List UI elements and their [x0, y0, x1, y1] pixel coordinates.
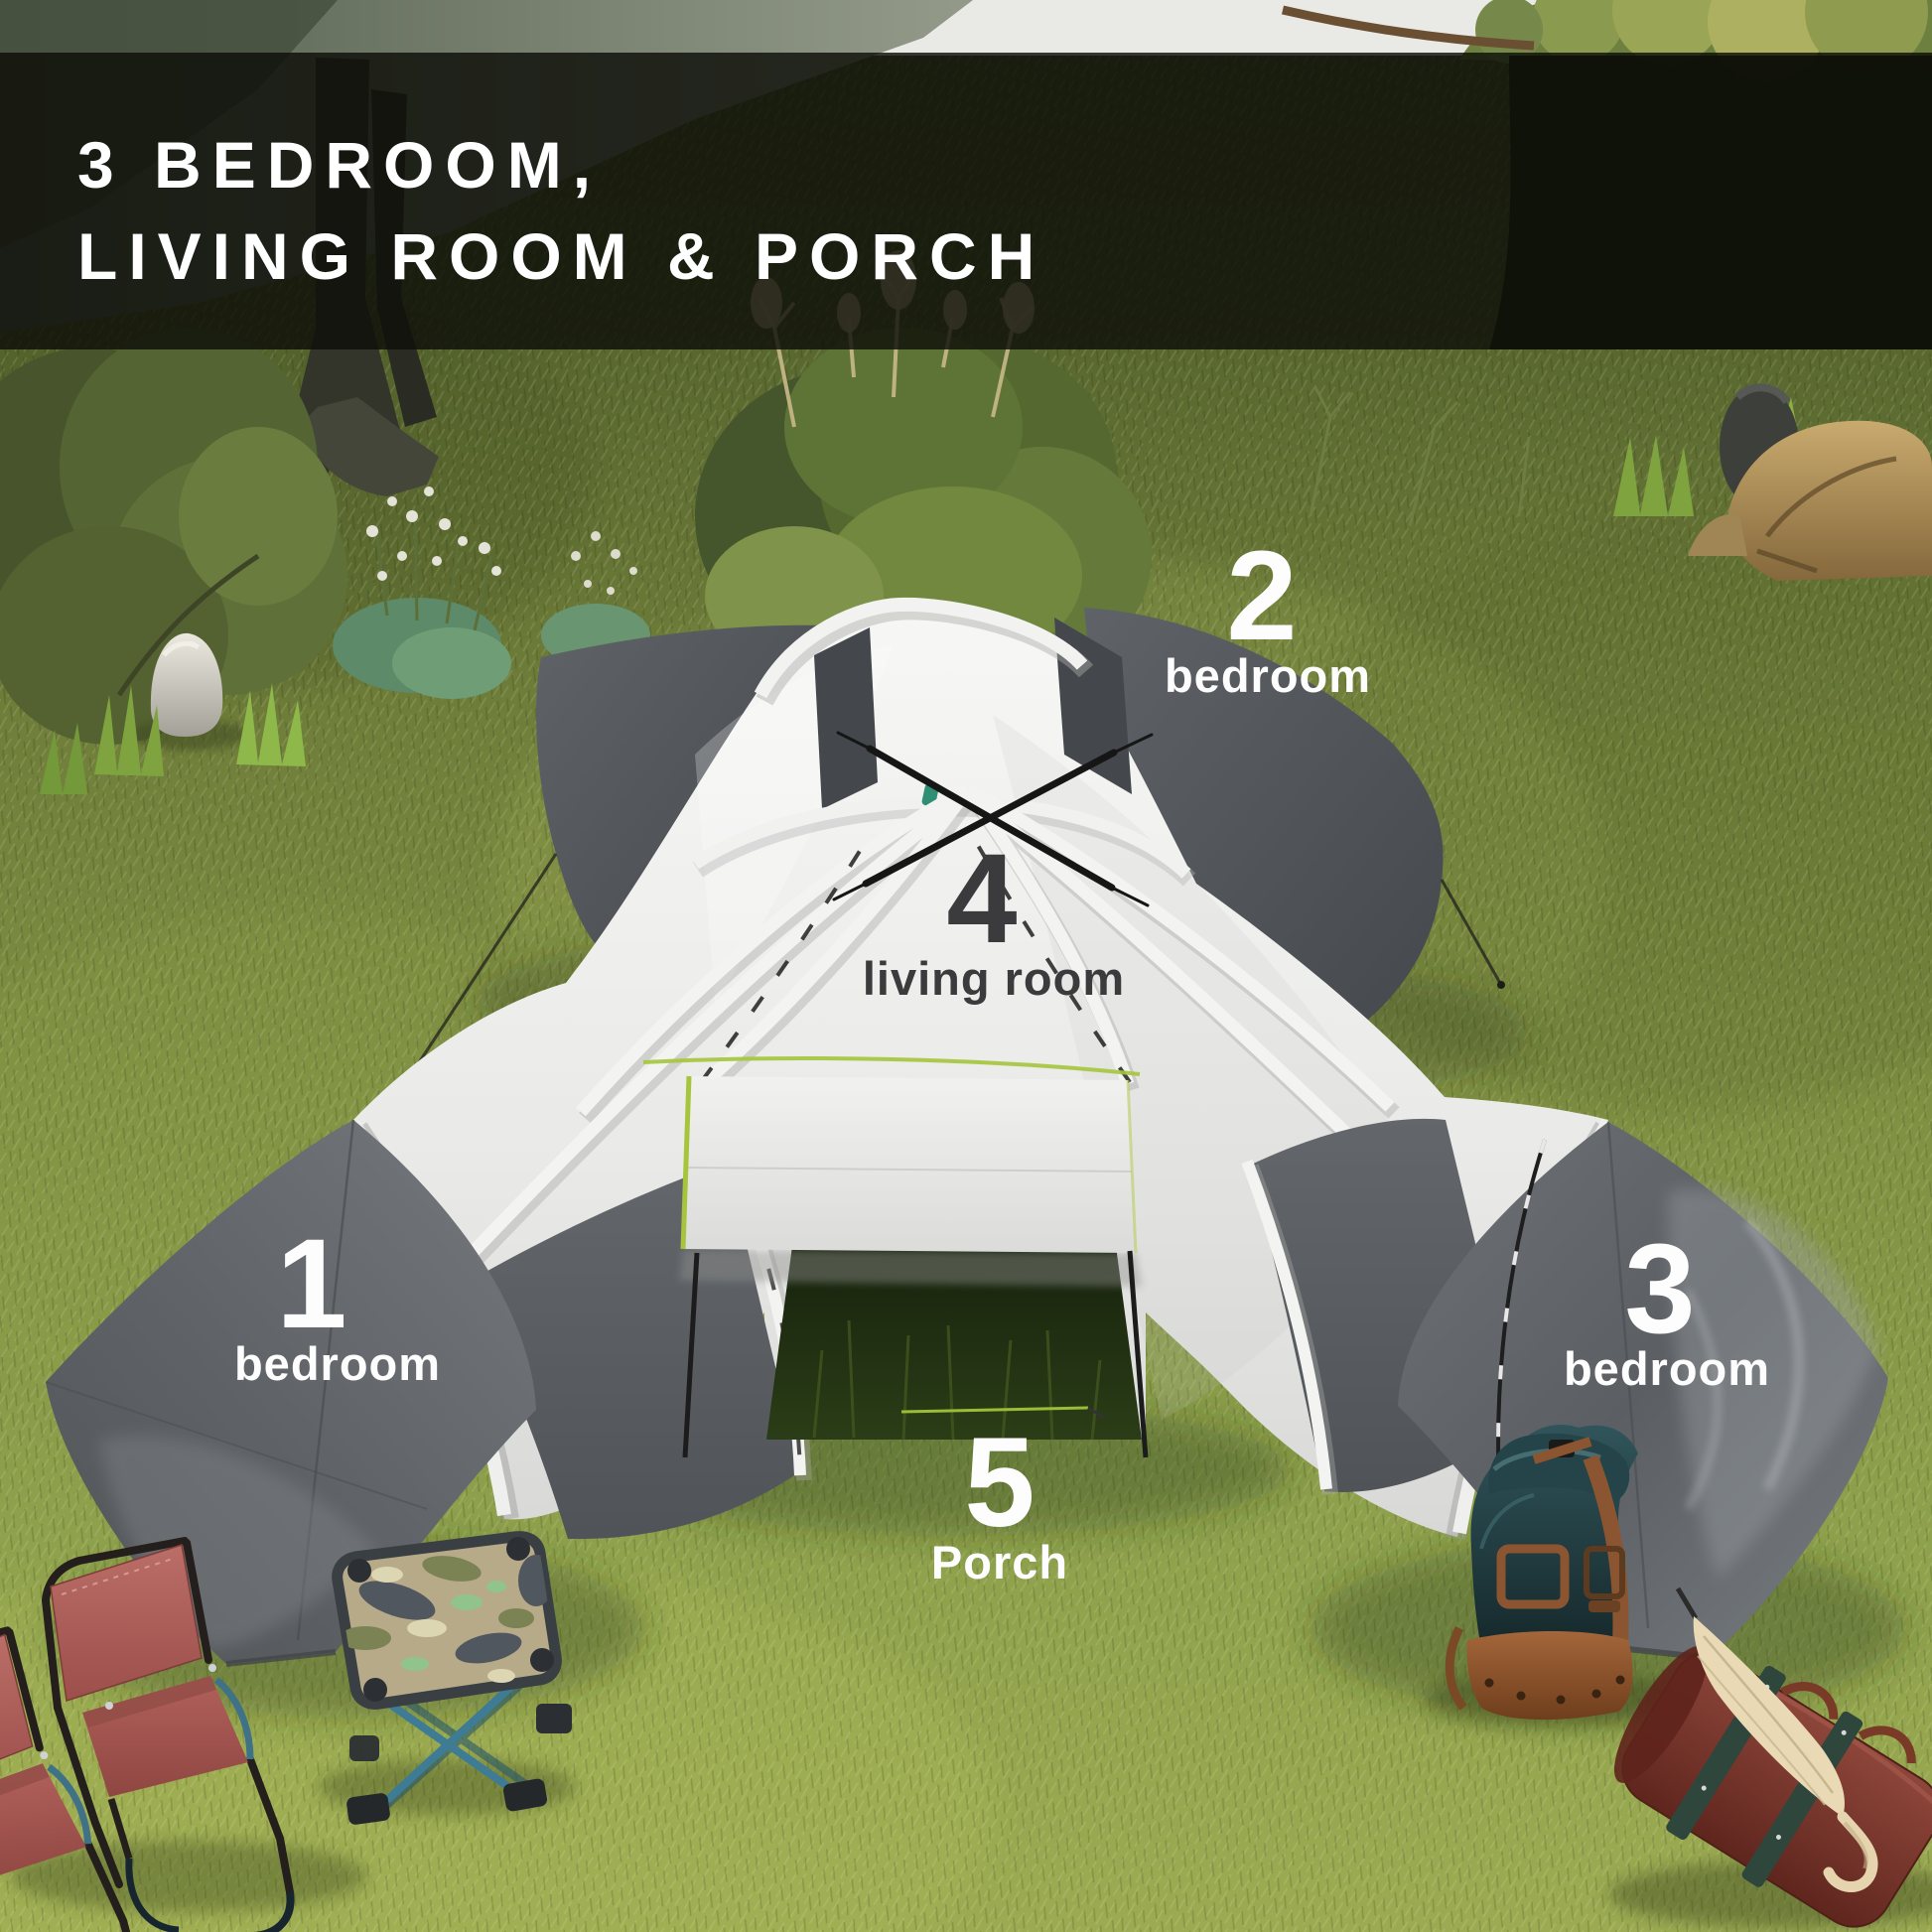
label-bedroom-2-number: 2	[1153, 547, 1371, 646]
label-living-room-number: 4	[839, 850, 1125, 949]
label-bedroom-1-text: bedroom	[234, 1340, 441, 1387]
label-bedroom-2: 2 bedroom	[1153, 547, 1371, 699]
door-flap	[683, 1076, 1136, 1253]
label-porch-number: 5	[931, 1434, 1068, 1533]
label-porch-text: Porch	[931, 1539, 1068, 1586]
label-porch: 5 Porch	[931, 1434, 1068, 1586]
label-bedroom-1: 1 bedroom	[183, 1235, 441, 1387]
tent-product-photo: 3 BEDROOM, LIVING ROOM & PORCH 2 bedroom…	[0, 0, 1932, 1932]
label-bedroom-3-text: bedroom	[1564, 1345, 1770, 1392]
label-living-room: 4 living room	[839, 850, 1125, 1002]
label-bedroom-2-text: bedroom	[1165, 652, 1371, 699]
label-living-room-text: living room	[863, 955, 1125, 1002]
headline-line-1: 3 BEDROOM,	[77, 119, 1932, 210]
label-bedroom-3: 3 bedroom	[1550, 1240, 1770, 1392]
label-bedroom-3-number: 3	[1550, 1240, 1770, 1339]
label-bedroom-1-number: 1	[183, 1235, 441, 1334]
headline-line-2: LIVING ROOM & PORCH	[77, 210, 1932, 302]
headline-banner: 3 BEDROOM, LIVING ROOM & PORCH	[0, 53, 1932, 349]
